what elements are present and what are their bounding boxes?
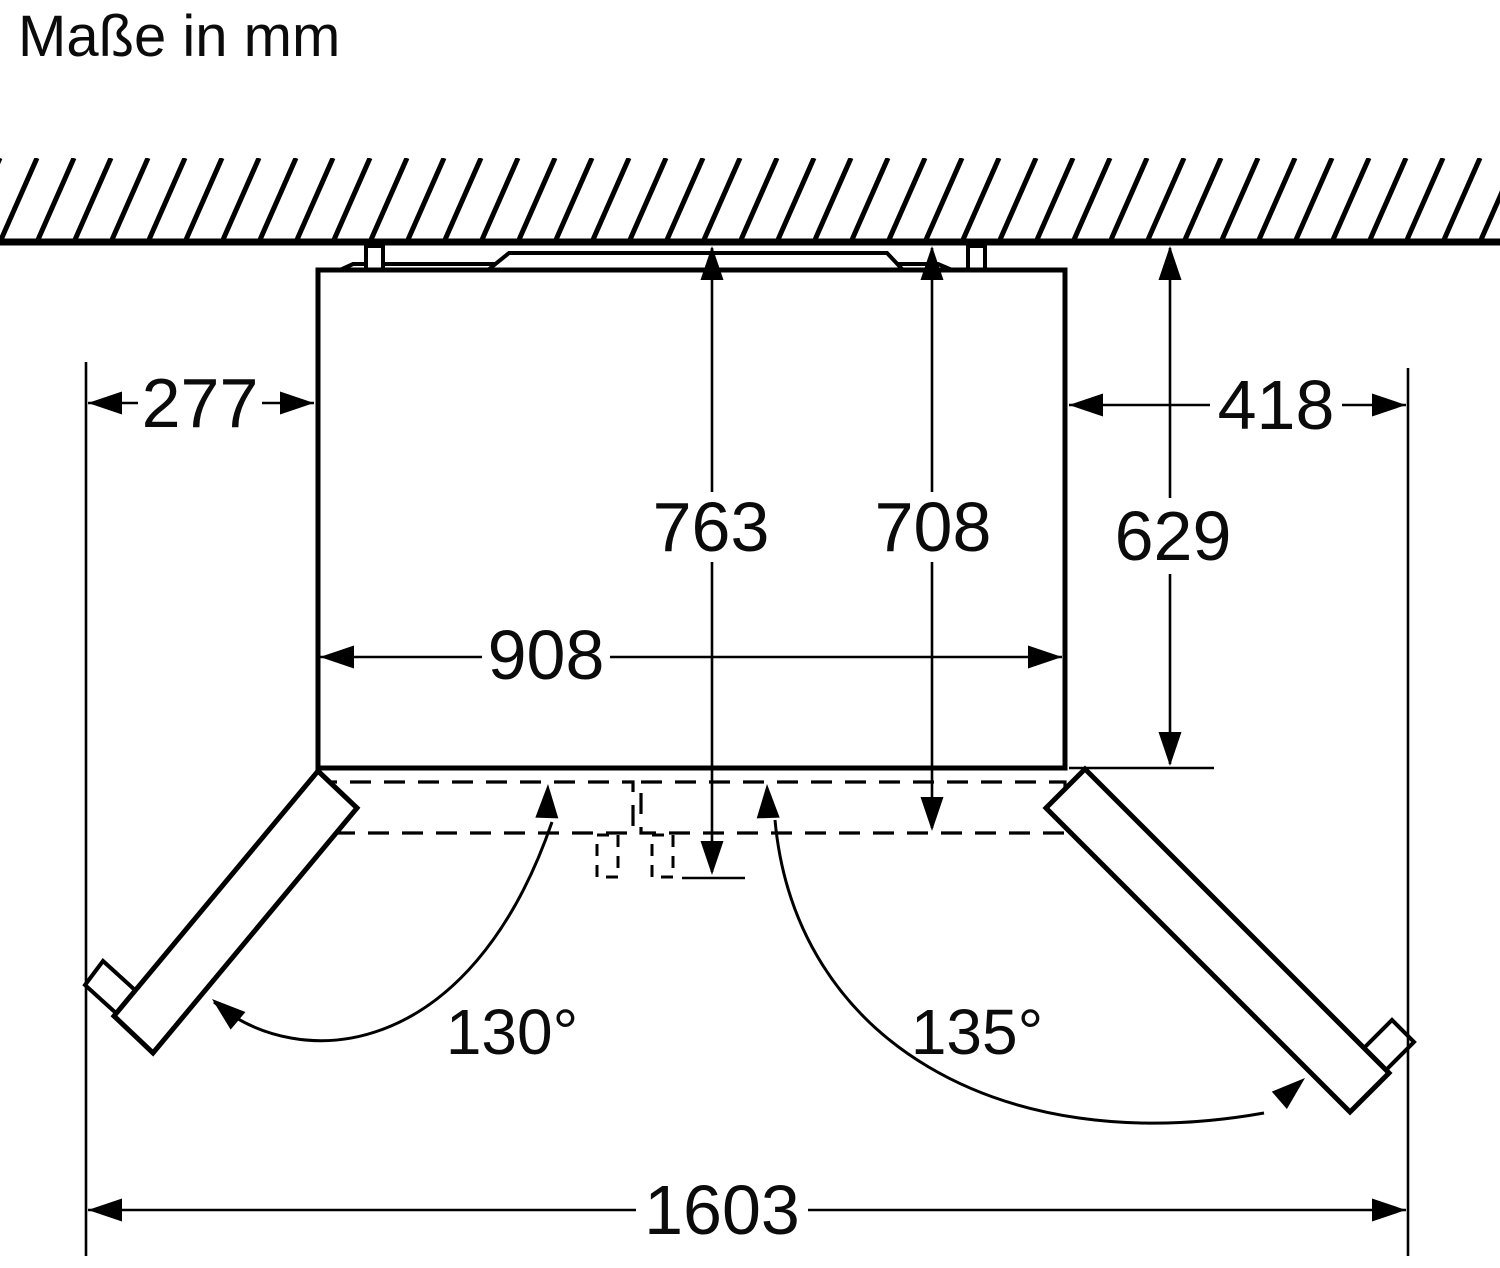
wall-hatch <box>0 158 1500 242</box>
dim-label-708: 708 <box>875 488 992 566</box>
left-swing-arrowhead-closed <box>535 784 559 819</box>
arrowhead-down <box>701 841 724 875</box>
arrowhead-left <box>88 392 122 415</box>
page-title: Maße in mm <box>18 4 340 69</box>
arrowhead-left <box>88 1199 122 1222</box>
dim-width-total: 1603 <box>88 1171 1406 1249</box>
arrowhead-right <box>1372 394 1406 417</box>
arrowhead-down <box>1159 732 1182 766</box>
dim-label-763: 763 <box>653 488 770 566</box>
right-swing-arrowhead-closed <box>756 784 780 819</box>
arrowhead-right <box>1372 1199 1406 1222</box>
dim-label-418: 418 <box>1218 366 1335 444</box>
wall-spacer-left <box>366 246 383 270</box>
installation-drawing: Maße in mm 130° <box>0 0 1500 1268</box>
right-swing-arc <box>775 820 1264 1123</box>
arrowhead-up <box>1159 246 1182 280</box>
dim-label-908: 908 <box>488 616 605 694</box>
right-swing-arrowhead-door <box>1272 1069 1313 1109</box>
right-door-body <box>1046 769 1389 1112</box>
handle-closed-right-dashed <box>652 835 673 877</box>
left-door-angle-label: 130° <box>446 996 578 1068</box>
door-closed-right-dashed <box>641 782 1065 833</box>
arrowhead-left <box>1069 394 1103 417</box>
dim-depth-body: 629 <box>1115 246 1232 766</box>
fridge-top-trim <box>340 246 985 270</box>
door-closed-left-dashed <box>316 782 633 833</box>
wall <box>0 158 1500 242</box>
dim-clearance-right: 418 <box>1069 366 1406 444</box>
doors-closed-dashed <box>316 782 1065 877</box>
right-door-open <box>1046 769 1414 1112</box>
dim-label-277: 277 <box>142 364 259 442</box>
diagram-canvas: Maße in mm 130° <box>0 0 1500 1268</box>
dim-label-1603: 1603 <box>644 1171 800 1249</box>
arrowhead-right <box>280 392 314 415</box>
left-swing-arrowhead-door <box>205 990 246 1029</box>
wall-spacer-right <box>968 246 985 270</box>
top-trim-lid <box>488 253 903 270</box>
arrowhead-down <box>921 797 944 831</box>
right-door-angle-label: 135° <box>911 996 1043 1068</box>
dim-clearance-left: 277 <box>88 364 314 442</box>
dim-label-629: 629 <box>1115 497 1232 575</box>
handle-closed-left-dashed <box>597 835 618 877</box>
